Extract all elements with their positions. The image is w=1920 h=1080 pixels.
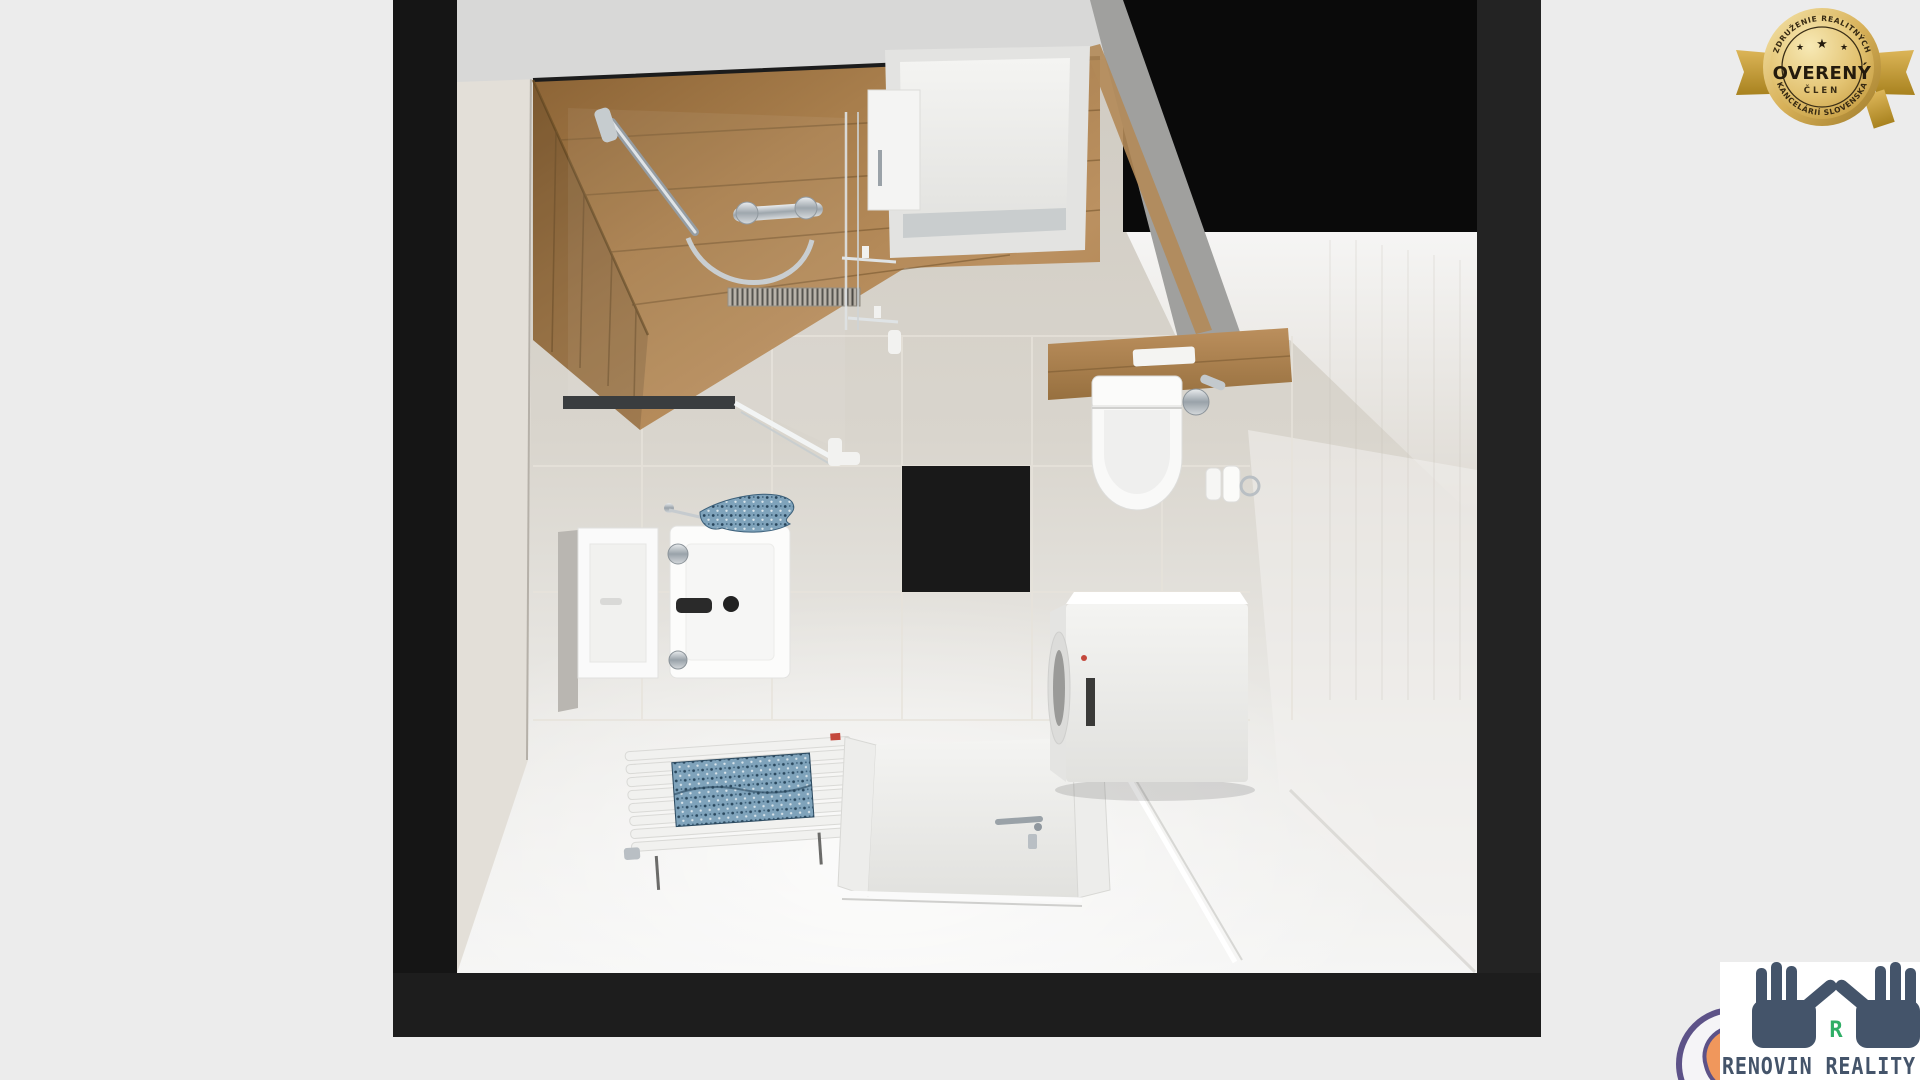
- chrome-fitting: [668, 544, 688, 564]
- washing-machine: [1048, 592, 1255, 801]
- frame-right: [1477, 0, 1541, 1037]
- washer-top: [1066, 592, 1248, 604]
- badge-subtitle: ČLEN: [1804, 84, 1841, 96]
- basin-drain: [723, 596, 739, 612]
- mirror-edge: [558, 530, 578, 712]
- bottle: [874, 306, 881, 318]
- black-wall-tile: [902, 466, 1030, 592]
- room-interior: [360, 0, 1477, 1080]
- badge-title: OVERENÝ: [1773, 62, 1872, 84]
- toilet: [1092, 376, 1182, 510]
- frame-bottom: [393, 973, 1541, 1037]
- chrome-fitting: [669, 651, 687, 669]
- washer-led: [1081, 655, 1087, 661]
- badge-star: ★: [1796, 43, 1804, 53]
- washer-vent: [1086, 678, 1095, 726]
- badge-star: ★: [1816, 37, 1828, 52]
- door-lock: [1028, 834, 1037, 849]
- black-faucet: [676, 598, 712, 613]
- door-slab: [868, 738, 1078, 898]
- frame-left: [393, 0, 457, 1037]
- glass-door-frame: [868, 90, 920, 210]
- glass-top-bar: [563, 396, 735, 409]
- bottle: [862, 246, 869, 258]
- countertop-washbasin: [670, 526, 790, 678]
- spray-gun: [1183, 389, 1209, 415]
- flush-plate: [1133, 346, 1196, 366]
- badge-star: ★: [1840, 43, 1848, 53]
- logo-monogram: R: [1829, 1018, 1843, 1043]
- logo-company-name: RENOVIN REALITY: [1722, 1054, 1916, 1080]
- screenshot-root: ZDRUŽENIE REALITNÝCH KANCELÁRIÍ SLOVENSK…: [0, 0, 1920, 1080]
- red-accessory: [830, 733, 840, 741]
- radiator-bracket: [624, 847, 641, 860]
- door-handle: [998, 819, 1040, 822]
- bathroom-render: ZDRUŽENIE REALITNÝCH KANCELÁRIÍ SLOVENSK…: [0, 0, 1920, 1080]
